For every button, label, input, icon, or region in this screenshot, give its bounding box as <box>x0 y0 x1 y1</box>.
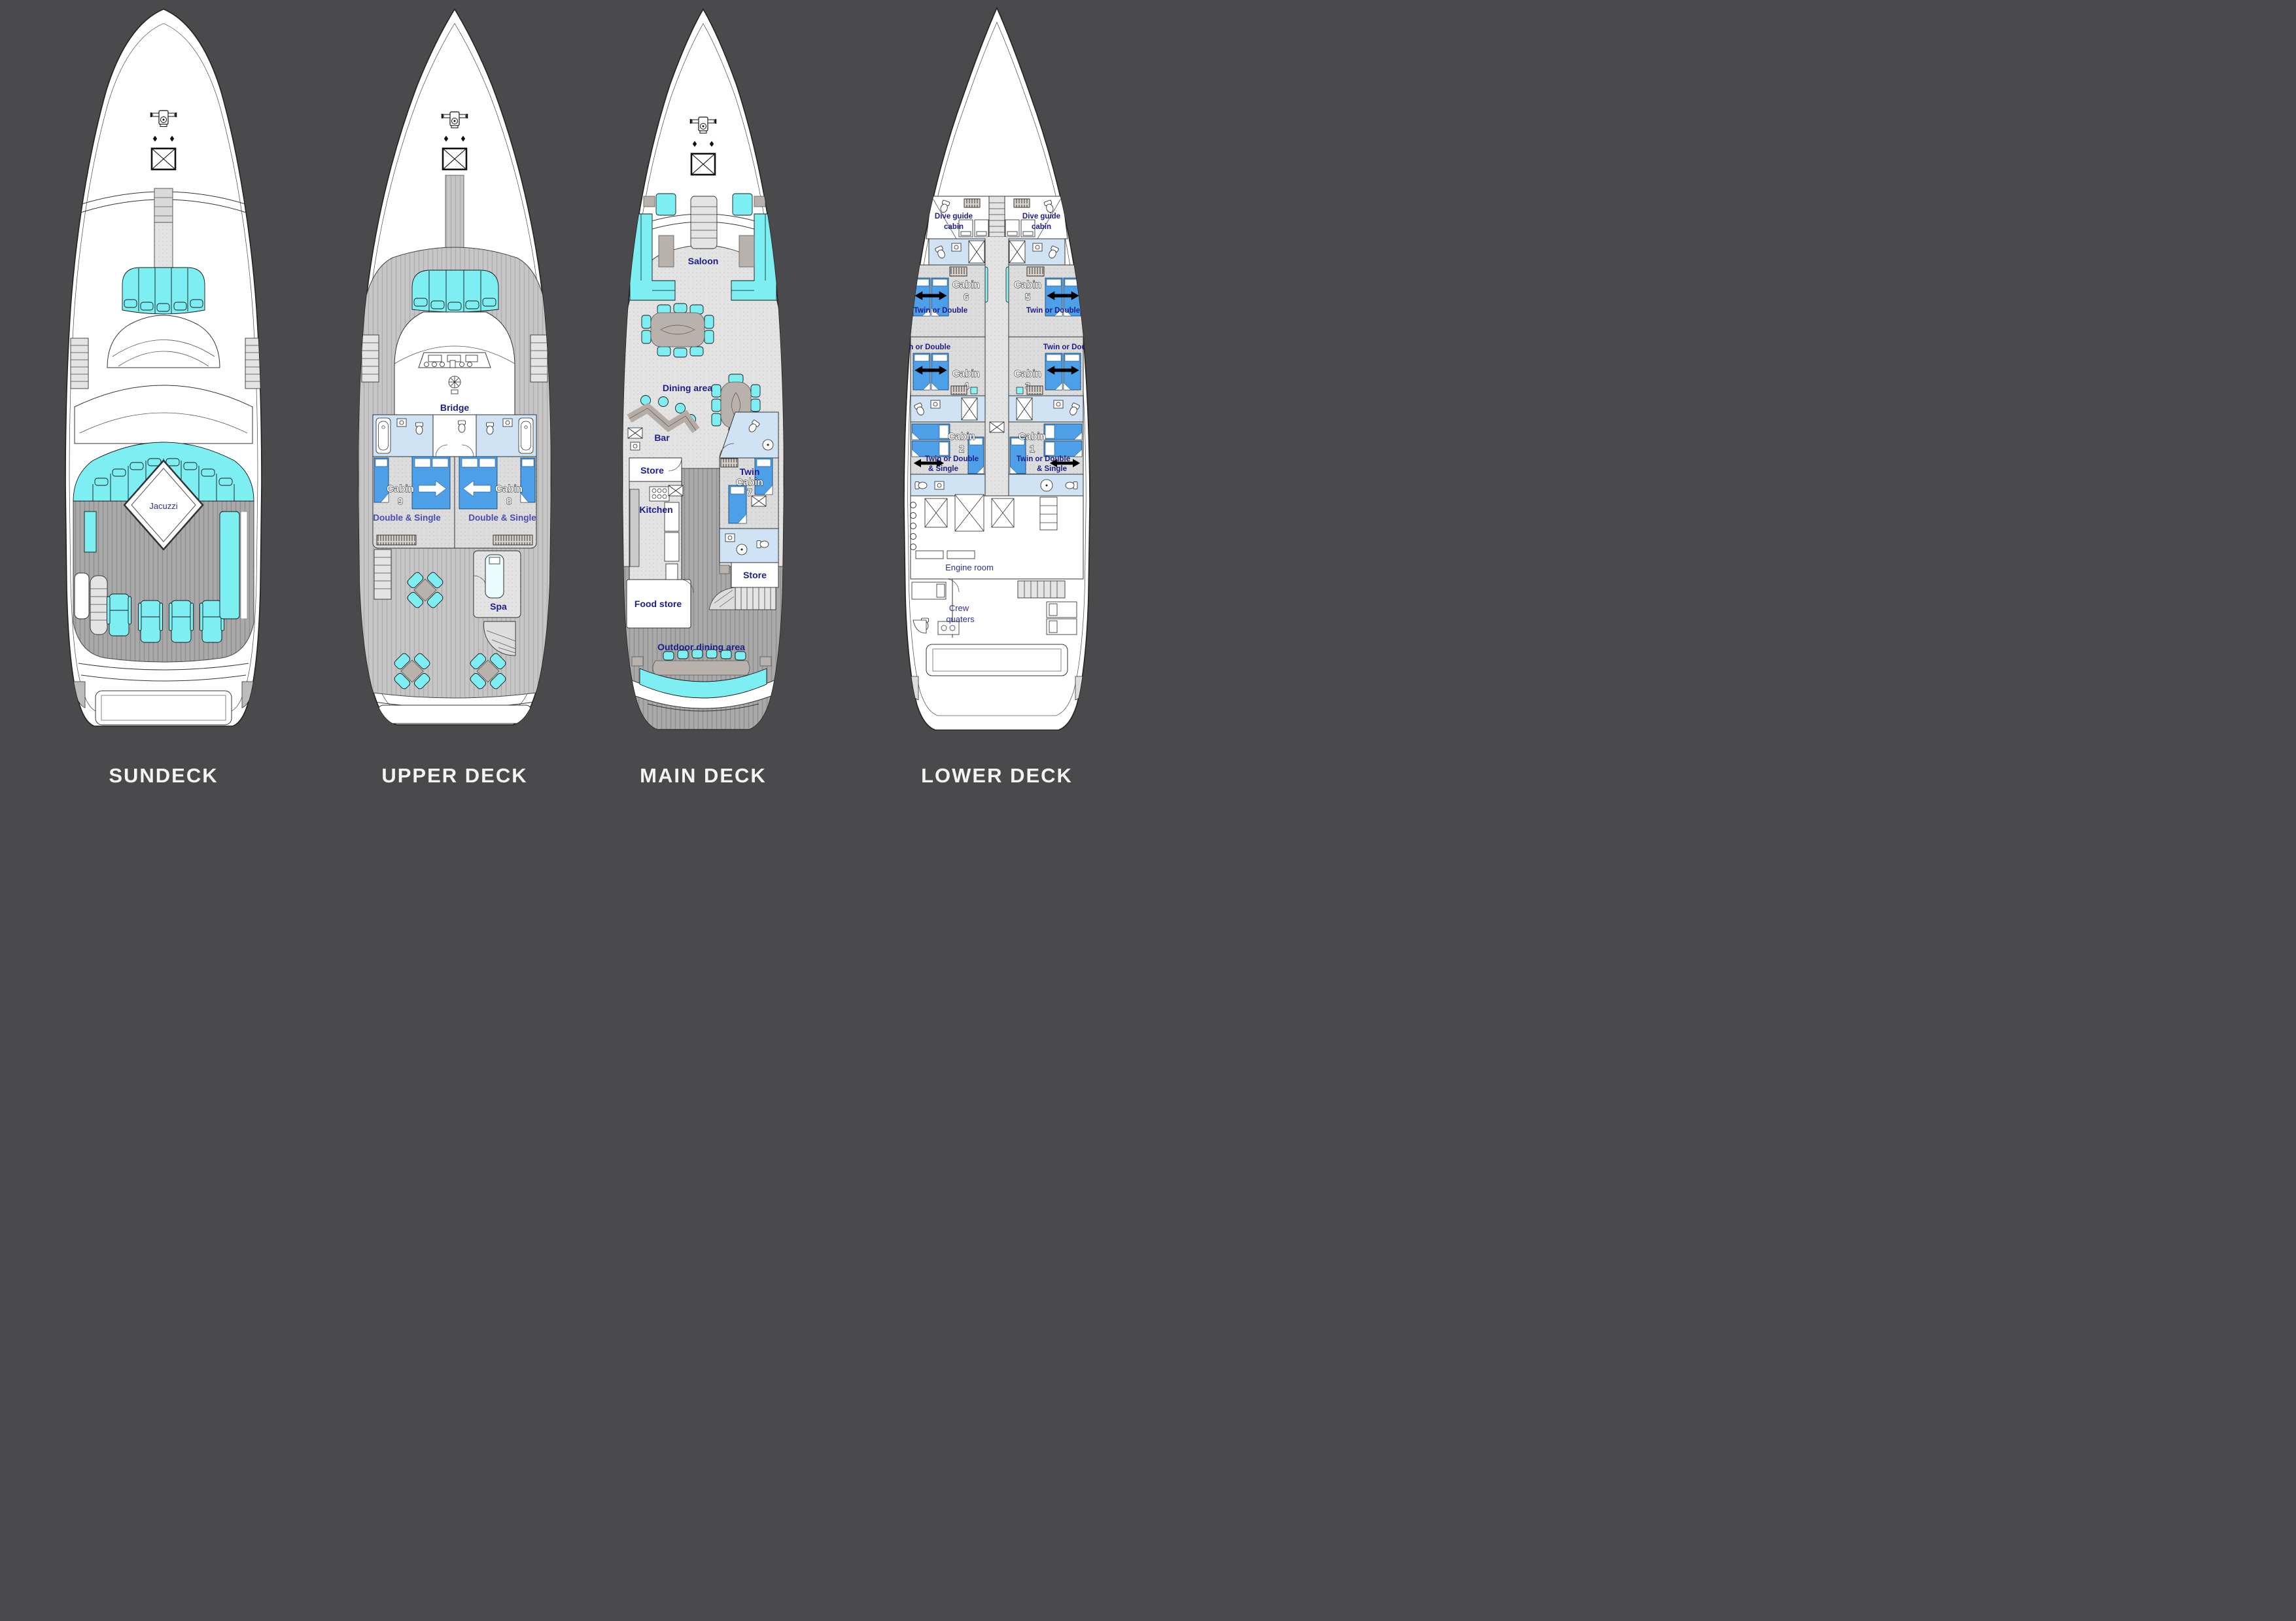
engine-room: Engine room <box>911 495 1084 579</box>
toilet-icon <box>1066 482 1077 489</box>
upper-deck-plan: Bridge Cabin <box>358 9 551 787</box>
sun-lounger <box>107 594 131 636</box>
sink-icon <box>935 481 944 489</box>
label-cabin2-single: & Single <box>928 465 958 473</box>
label-dining-area: Dining area <box>663 383 712 393</box>
side-deck <box>241 512 247 619</box>
label-cabin8-num: 8 <box>506 496 512 507</box>
kitchen: Kitchen <box>629 481 683 593</box>
shower-icon <box>1017 398 1032 420</box>
deck-title-main: MAIN DECK <box>640 764 767 787</box>
shower-icon <box>962 398 977 420</box>
dumb-waiter <box>669 485 683 496</box>
twin-cabin-7: Twin Cabin 7 <box>720 412 778 563</box>
coffee-table <box>659 235 674 267</box>
label-cabin5-num: 5 <box>1025 292 1030 303</box>
hatch-box <box>990 422 1004 432</box>
label-bridge: Bridge <box>440 402 470 413</box>
toilet-icon <box>487 423 494 434</box>
coffee-table <box>739 235 754 267</box>
label-food-store: Food store <box>635 599 682 609</box>
machinery <box>1040 497 1057 530</box>
label-cabin6: Cabin <box>952 279 980 290</box>
food-store: Food store <box>627 580 693 628</box>
deck-title-lower: LOWER DECK <box>921 764 1073 787</box>
bathtub-icon <box>376 418 391 453</box>
stool <box>678 650 688 659</box>
side-table <box>644 196 655 207</box>
upper-cabins-block: Cabin 9 Double & Single Cabin 8 Double &… <box>373 415 536 548</box>
deck-hatch-icon <box>691 154 715 175</box>
wardrobe <box>493 535 532 545</box>
deck-bench <box>75 573 89 619</box>
main-deck-plan: Saloon Dining area Bar <box>623 9 784 787</box>
yacht-deck-plan-canvas: Jacuzzi SUNDECK <box>0 0 1148 811</box>
bar-stool <box>659 397 669 407</box>
label-cabin7-cabin: Cabin <box>736 477 763 488</box>
wardrobe <box>377 535 416 545</box>
label-cabin3: Cabin <box>1014 368 1041 379</box>
wardrobe <box>721 459 738 467</box>
deck-plans-svg: Jacuzzi SUNDECK <box>0 0 1148 811</box>
label-cabin7-twin: Twin <box>740 466 760 477</box>
skylight-small <box>1017 387 1023 394</box>
label-cabin9: Cabin <box>387 483 414 495</box>
label-cabin4: Cabin <box>952 368 980 379</box>
stool <box>706 650 717 658</box>
label-jacuzzi: Jacuzzi <box>149 501 177 511</box>
label-cabin2: Cabin <box>948 431 975 442</box>
wardrobe <box>950 267 967 276</box>
central-stairs <box>989 196 1005 237</box>
dive-guide-cabin-left: Dive guide cabin <box>926 196 989 239</box>
sundeck-aft-stairs <box>90 576 107 635</box>
side-table <box>632 657 643 666</box>
toilet-icon <box>757 541 769 548</box>
label-spa: Spa <box>490 601 507 612</box>
aft-bench <box>220 512 239 619</box>
label-cabin6-num: 6 <box>964 292 969 303</box>
skylight-small <box>971 387 977 394</box>
label-cabin8: Cabin <box>495 483 523 495</box>
deck-hatch-icon <box>443 148 466 169</box>
cabin-5: Cabin 5 Twin or Double <box>1009 265 1083 337</box>
crew-stairs <box>1018 581 1065 598</box>
sink-icon <box>503 419 512 427</box>
stool <box>721 650 731 659</box>
label-dive-guide-2: cabin <box>944 223 964 231</box>
side-table <box>754 196 765 207</box>
kitchen-counter <box>630 489 639 566</box>
sink-icon <box>1054 400 1063 408</box>
armchair <box>656 194 676 215</box>
label-cabin5: Cabin <box>1014 279 1041 290</box>
label-cabin4-type: Twin or Double <box>897 343 950 351</box>
label-cabin7-num: 7 <box>747 487 752 498</box>
label-bar: Bar <box>654 432 670 443</box>
wardrobe <box>1027 386 1043 394</box>
sink-icon <box>1033 243 1042 251</box>
label-cabin9-type: Double & Single <box>373 513 441 523</box>
label-engine-room: Engine room <box>945 563 994 572</box>
spa-room: Spa <box>474 551 521 618</box>
label-cabin9-num: 9 <box>398 496 403 507</box>
dive-guide-cabin-right: Dive guide cabin <box>1005 196 1068 239</box>
kitchen-island <box>665 532 679 561</box>
shower-icon <box>1009 241 1025 263</box>
wardrobe <box>1027 267 1044 276</box>
hatch-box <box>752 496 766 506</box>
toilet-icon <box>915 482 927 489</box>
toilet-icon <box>459 421 466 432</box>
stool <box>735 652 746 660</box>
center-hall <box>433 415 476 457</box>
sink-icon <box>631 442 640 450</box>
mast-walkway <box>154 188 173 222</box>
deck-title-sundeck: SUNDECK <box>109 764 218 787</box>
label-cabin6-type: Twin or Double <box>914 307 967 315</box>
label-crew-2: quaters <box>946 614 975 624</box>
deck-hatch-icon <box>152 148 175 169</box>
label-cabin5-type: Twin or Double <box>1026 307 1080 315</box>
label-dive-guide: Dive guide <box>1022 213 1060 220</box>
sun-lounger <box>139 601 163 642</box>
deck-table <box>84 512 96 552</box>
wardrobe <box>951 386 967 394</box>
bar-stool <box>676 404 686 413</box>
label-cabin1-num: 1 <box>1030 444 1035 455</box>
dining-table <box>651 313 704 347</box>
upper-aft-stairs <box>374 549 391 599</box>
stool <box>663 652 674 660</box>
label-dive-guide: Dive guide <box>935 213 973 220</box>
deck-title-upper: UPPER DECK <box>381 764 527 787</box>
stool <box>692 650 703 658</box>
label-cabin1: Cabin <box>1018 431 1046 442</box>
lower-deck-plan: Dive guide cabin Dive guide cabin <box>897 8 1097 787</box>
bathtub-icon <box>519 418 533 453</box>
label-cabin3-type: Twin or Double <box>1043 343 1097 351</box>
store-forward: Store <box>629 458 682 481</box>
side-table <box>760 657 771 666</box>
sun-lounger <box>169 601 194 642</box>
label-store-aft: Store <box>743 570 767 580</box>
swim-platform <box>378 705 531 723</box>
label-dive-guide-2: cabin <box>1032 223 1051 231</box>
label-cabin8-type: Double & Single <box>468 513 536 523</box>
sink-icon <box>952 243 961 251</box>
label-cabin2-num: 2 <box>959 444 964 455</box>
sink-icon <box>725 534 735 542</box>
label-cabin1-single: & Single <box>1037 465 1067 473</box>
outdoor-table <box>653 661 750 675</box>
bridge: Bridge <box>394 312 515 415</box>
armchair <box>733 194 752 215</box>
cabin-2: Cabin 2 Twin or Double & Single <box>911 422 985 474</box>
sundeck-plan: Jacuzzi SUNDECK <box>65 9 263 787</box>
sink-icon <box>931 400 940 408</box>
shower-icon <box>969 241 984 263</box>
dumb-waiter <box>628 428 642 438</box>
label-cabin2-type: Twin or Double <box>925 455 979 463</box>
bow-walkway <box>445 175 464 253</box>
toilet-icon <box>416 423 423 434</box>
label-store-fwd: Store <box>640 465 664 476</box>
corridor <box>985 237 1009 498</box>
label-kitchen: Kitchen <box>639 504 672 515</box>
label-saloon: Saloon <box>688 256 719 266</box>
mast-walkway <box>154 222 173 268</box>
label-cabin1-type: Twin or Double <box>1017 455 1070 463</box>
label-crew-1: Crew <box>949 603 969 613</box>
cabin-6: Cabin 6 Twin or Double <box>911 265 985 337</box>
sink-icon <box>397 419 406 427</box>
